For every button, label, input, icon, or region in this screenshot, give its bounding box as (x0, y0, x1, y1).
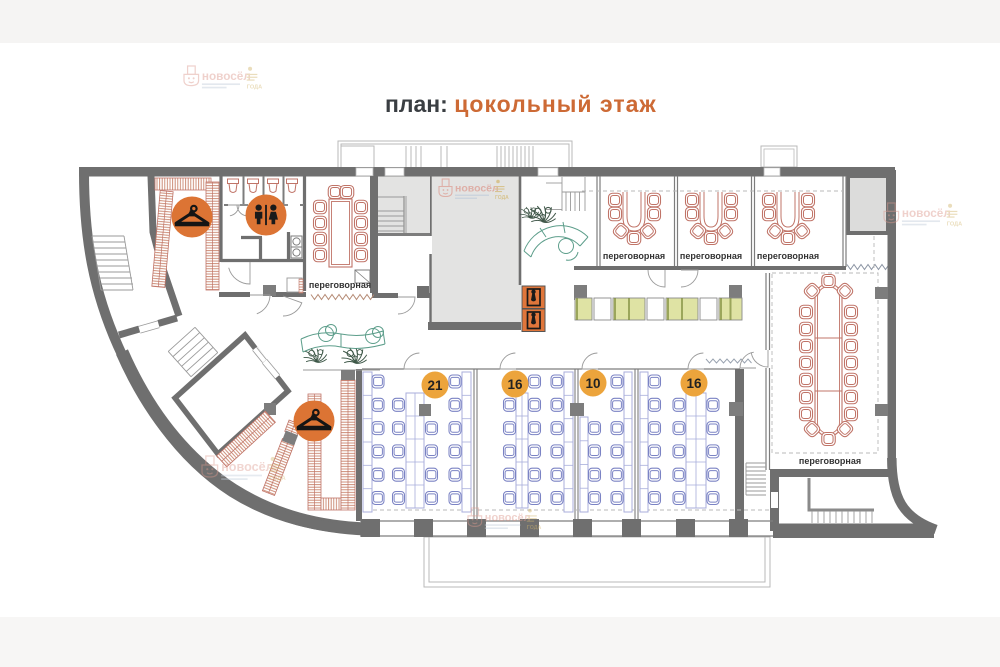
svg-text:план: цокольный этаж: план: цокольный этаж (385, 91, 657, 117)
svg-text:16: 16 (686, 376, 702, 391)
svg-text:новосёл: новосёл (485, 512, 531, 524)
svg-text:переговорная: переговорная (757, 251, 819, 261)
svg-text:переговорная: переговорная (603, 251, 665, 261)
svg-text:переговорная: переговорная (680, 251, 742, 261)
svg-text:10: 10 (585, 376, 600, 391)
svg-text:16: 16 (507, 377, 523, 392)
svg-text:ГОДА: ГОДА (947, 221, 962, 227)
svg-text:переговорная: переговорная (309, 280, 371, 290)
svg-text:ГОДА: ГОДА (495, 195, 509, 201)
svg-text:21: 21 (427, 378, 443, 393)
svg-text:новосёл: новосёл (202, 70, 251, 83)
svg-text:ГОДА: ГОДА (269, 476, 286, 482)
svg-text:новосёл: новосёл (455, 183, 499, 195)
svg-text:новосёл: новосёл (221, 460, 273, 474)
svg-text:новосёл: новосёл (902, 207, 951, 220)
svg-text:ГОДА: ГОДА (527, 525, 542, 531)
svg-text:ГОДА: ГОДА (247, 84, 262, 90)
svg-text:переговорная: переговорная (799, 456, 861, 466)
